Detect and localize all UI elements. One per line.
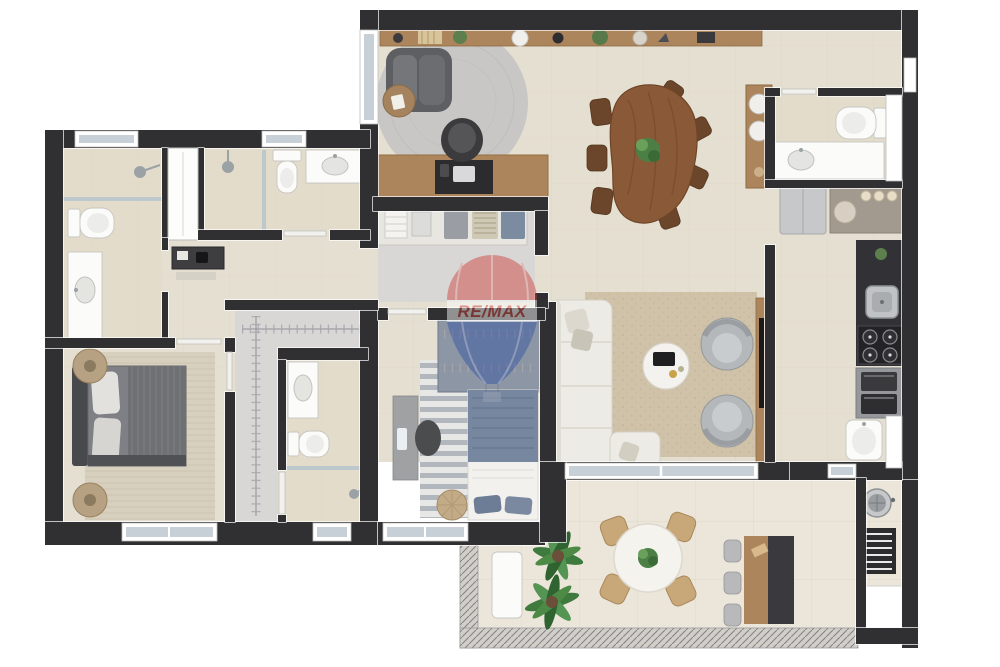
plant2-icon [592,29,608,45]
sliding-door-family [565,463,758,479]
bar-table [744,536,794,624]
vanity-3 [288,362,318,418]
terrace-table-plant [638,548,658,568]
dark-bowl-icon [553,33,564,44]
toilet [68,208,114,238]
desk-chair [441,118,483,162]
floor-plan-screenshot: RE/MAX [0,0,1000,667]
nightstand-1 [73,349,107,383]
phone [440,164,449,177]
folded-linen [412,212,431,236]
window-ensuite-bottom [313,523,351,541]
vase-icon [393,33,403,43]
single-bed [468,390,538,520]
vanity-4 [772,142,884,179]
floor-plan: RE/MAX [0,0,1000,667]
blue-blanket [468,390,538,462]
nightstand-2 [73,483,107,517]
tray [653,352,675,366]
knit-throw [128,366,186,466]
cooktop [858,326,902,364]
shower-glass-2 [262,150,266,230]
window-master-bottom [122,523,217,541]
shower-glass-3 [284,466,365,470]
vanity-2 [306,150,365,183]
window-living-left [360,30,378,124]
bowl-icon [512,30,528,46]
folded-shirt-gray [444,211,468,239]
pillow [504,496,532,515]
wall-desk [393,396,418,480]
round-side-table [383,85,415,117]
toilet-2 [273,150,301,193]
pillow [473,495,502,515]
refrigerator [780,186,826,234]
laundry-sink [846,420,882,460]
round-armchair-1 [701,318,753,370]
plant-icon [453,30,467,44]
bar-chairs [724,540,741,626]
round-pouf [437,490,467,520]
white-counter-box [862,586,902,628]
window-kitchen-bottom [828,464,856,478]
window-kitchen-right [886,416,902,468]
vanity [68,252,102,338]
jar-icon [754,167,764,177]
frame-icon [697,32,715,43]
round-tray [834,201,856,223]
counter-with-jars [830,186,902,233]
table-plant [636,138,660,162]
window-bath-mid-top [262,131,306,147]
window-right-notch [904,58,916,92]
tv [759,318,764,408]
laptop [453,166,475,182]
balloon-basket-icon [483,392,501,402]
master-bedroom [72,349,215,520]
desk-chair-2 [415,420,441,456]
folded-shirt-blue [501,211,525,239]
shower-glass [63,197,162,201]
coffee-table [643,343,689,389]
dark-counter [856,240,907,366]
tray [177,251,188,260]
bag [196,252,208,263]
pillow [570,328,594,352]
oven-stack [856,368,902,418]
console-shelf [176,272,216,280]
window-bath4-right [886,95,902,181]
family-room [548,292,772,468]
watermark-brand-text: RE/MAX [457,302,527,321]
window-bath-left-top [75,131,138,147]
wall-shelf [380,29,762,46]
counter-plant [875,248,887,260]
glass-railing-bottom [460,628,858,648]
white-bench [492,552,522,618]
pillow [92,417,122,461]
bed-runner [88,455,186,466]
window-bedroom2-bottom [383,523,468,541]
dish-icon [633,31,647,45]
toilet-4 [836,107,886,139]
toilet-3 [288,431,329,457]
round-armchair-2 [701,395,753,447]
